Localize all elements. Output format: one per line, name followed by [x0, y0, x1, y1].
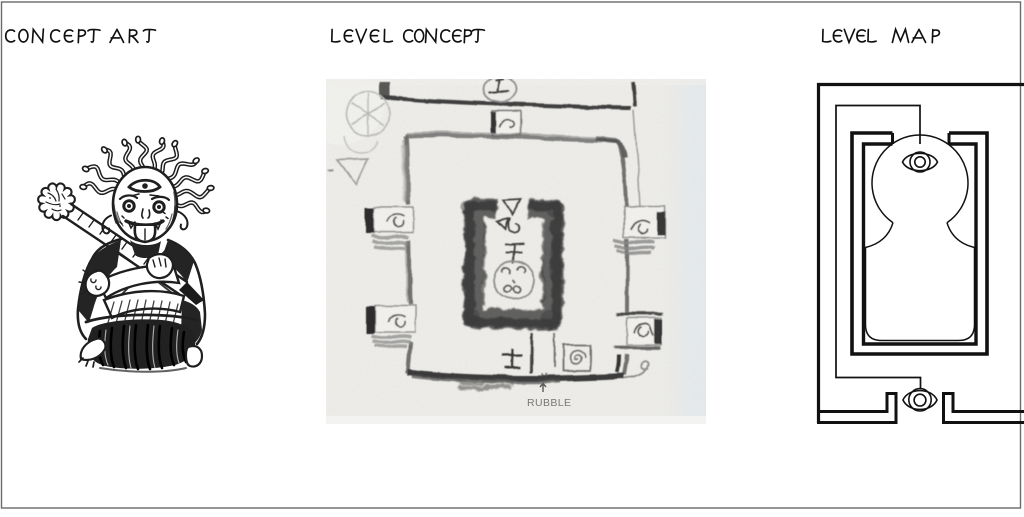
svg-text:RUBBLE: RUBBLE	[527, 397, 571, 409]
